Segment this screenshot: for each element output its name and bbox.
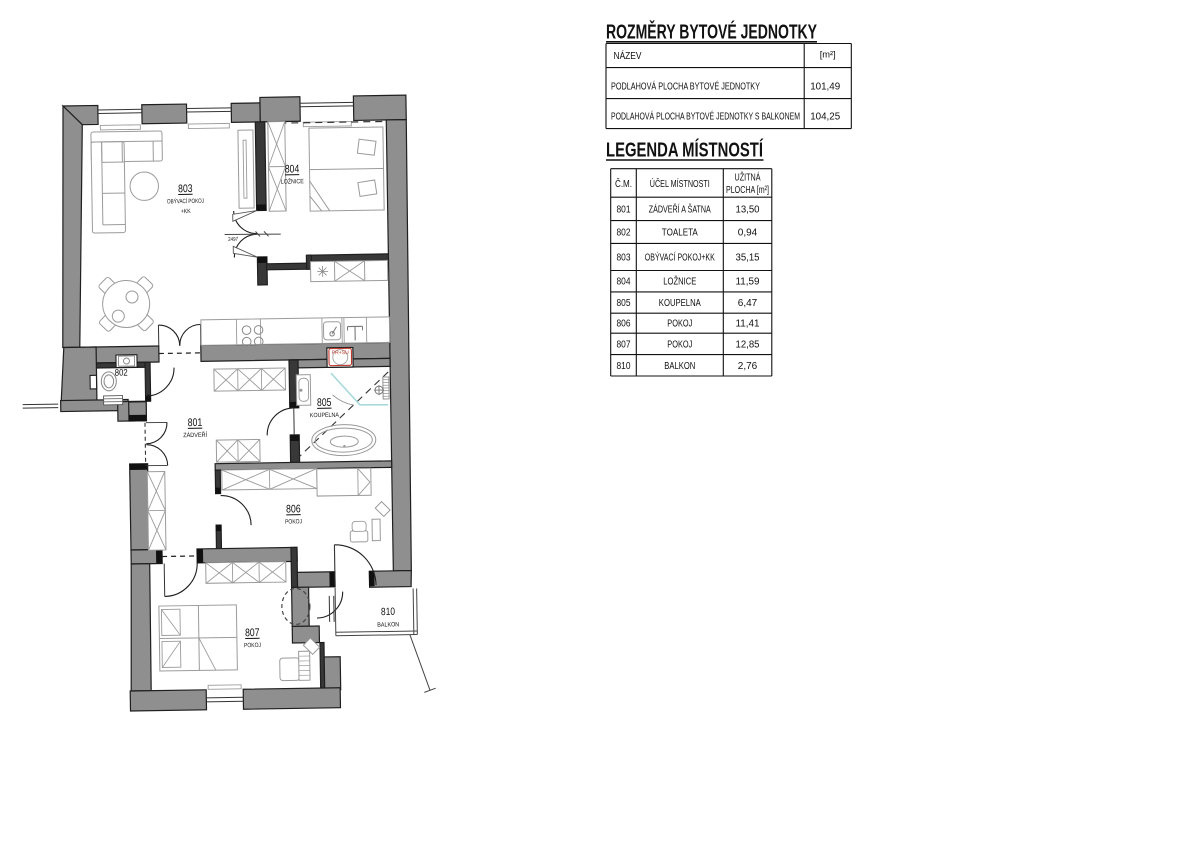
svg-text:803: 803 — [178, 183, 193, 195]
svg-text:2497: 2497 — [228, 237, 238, 243]
svg-text:ZÁDVEŘÍ: ZÁDVEŘÍ — [183, 431, 207, 439]
svg-text:101,49: 101,49 — [810, 82, 840, 93]
svg-text:+KK: +KK — [181, 208, 192, 215]
svg-text:PLOCHA [m²]: PLOCHA [m²] — [726, 185, 769, 196]
svg-text:LOŽNICE: LOŽNICE — [663, 275, 696, 288]
svg-text:11,41: 11,41 — [736, 319, 760, 330]
svg-text:2,76: 2,76 — [738, 361, 758, 372]
svg-text:BALKON: BALKON — [377, 621, 399, 628]
svg-text:810: 810 — [617, 361, 631, 372]
svg-text:807: 807 — [617, 339, 631, 350]
svg-text:OBÝVACÍ POKOJ: OBÝVACÍ POKOJ — [167, 198, 204, 206]
svg-text:804: 804 — [285, 163, 300, 175]
svg-text:UŽITNÁ: UŽITNÁ — [735, 171, 761, 184]
svg-text:PODLAHOVÁ PLOCHA BYTOVÉ JEDNOT: PODLAHOVÁ PLOCHA BYTOVÉ JEDNOTKY S BALKO… — [611, 110, 800, 123]
svg-text:801: 801 — [188, 417, 203, 429]
svg-text:[m²]: [m²] — [820, 50, 836, 61]
svg-text:PR+SU: PR+SU — [332, 350, 349, 356]
svg-text:KOUPELNA: KOUPELNA — [310, 412, 340, 419]
svg-text:BALKON: BALKON — [664, 361, 695, 372]
svg-text:810: 810 — [381, 606, 395, 618]
svg-text:ÚČEL MÍSTNOSTI: ÚČEL MÍSTNOSTI — [650, 177, 710, 190]
svg-text:801: 801 — [617, 204, 631, 215]
svg-text:TOALETA: TOALETA — [662, 228, 698, 239]
svg-text:806: 806 — [286, 503, 301, 515]
svg-text:104,25: 104,25 — [810, 112, 840, 123]
svg-text:807: 807 — [245, 627, 260, 639]
svg-text:POKOJ: POKOJ — [667, 319, 692, 330]
svg-text:13,50: 13,50 — [736, 204, 760, 215]
svg-text:POKOJ: POKOJ — [667, 339, 692, 350]
svg-text:6,47: 6,47 — [738, 298, 758, 309]
svg-text:LOŽNICE: LOŽNICE — [281, 177, 304, 185]
svg-text:35,15: 35,15 — [736, 252, 760, 263]
svg-text:804: 804 — [617, 277, 631, 288]
svg-text:11,59: 11,59 — [736, 277, 760, 288]
svg-text:806: 806 — [617, 319, 631, 330]
svg-text:802: 802 — [115, 368, 128, 379]
svg-text:805: 805 — [617, 298, 631, 309]
svg-text:802: 802 — [617, 228, 631, 239]
svg-text:ZÁDVEŘÍ A ŠATNA: ZÁDVEŘÍ A ŠATNA — [649, 202, 711, 215]
svg-text:ROZMĚRY BYTOVÉ JEDNOTKY: ROZMĚRY BYTOVÉ JEDNOTKY — [606, 20, 817, 44]
svg-text:POKOJ: POKOJ — [244, 642, 261, 649]
svg-text:NÁZEV: NÁZEV — [614, 49, 642, 62]
svg-text:Č.M.: Č.M. — [615, 177, 632, 190]
svg-text:0,94: 0,94 — [738, 228, 758, 239]
svg-text:LEGENDA MÍSTNOSTÍ: LEGENDA MÍSTNOSTÍ — [606, 139, 764, 162]
svg-text:KOUPELNA: KOUPELNA — [659, 298, 701, 309]
svg-text:803: 803 — [617, 252, 631, 263]
svg-text:12,85: 12,85 — [736, 339, 760, 350]
svg-text:PODLAHOVÁ PLOCHA BYTOVÉ JEDNOT: PODLAHOVÁ PLOCHA BYTOVÉ JEDNOTKY — [611, 80, 760, 93]
svg-text:OBÝVACÍ POKOJ+KK: OBÝVACÍ POKOJ+KK — [645, 250, 715, 263]
svg-text:805: 805 — [317, 397, 332, 409]
svg-text:POKOJ: POKOJ — [285, 518, 302, 525]
